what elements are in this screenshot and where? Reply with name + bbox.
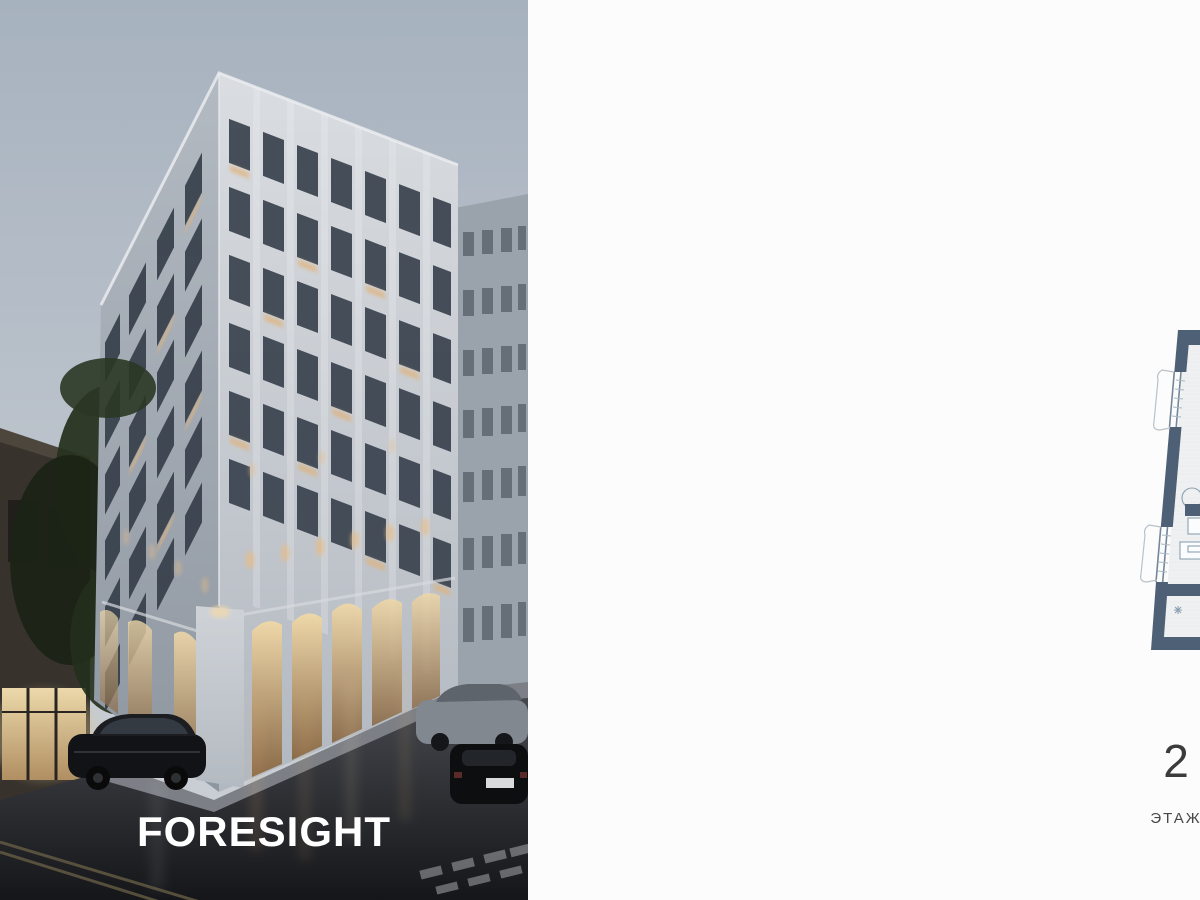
floor-plan: 16.89 20.92 6.16 1.93 2.43 3.60 7.77 6.5…	[1118, 262, 1200, 700]
stat-floor-value: 2	[1163, 738, 1189, 784]
apartment-stats: 2 ЭТАЖ 81,57 м2 ПЛОЩАДЬ 1 СПАЛЬНИ	[1056, 712, 1200, 852]
brand-wordmark: ДОМ СОБОЛЕВА	[1056, 182, 1200, 217]
stat-floor: 2 ЭТАЖ	[1056, 712, 1200, 852]
building-photo	[0, 0, 528, 900]
photo-brand-label: FORESIGHT	[0, 808, 528, 856]
brand-monogram-text: ДЗ	[528, 0, 529, 1]
building-right-face	[219, 73, 458, 792]
car-right-dark	[450, 744, 528, 804]
property-flyer: FORESIGHT ДЗ ДОМ СОБОЛЕВА	[0, 0, 1200, 900]
neighbor-building-right	[455, 194, 528, 705]
stat-floor-label: ЭТАЖ	[1150, 810, 1200, 827]
foliage-top	[60, 358, 156, 418]
info-panel: ДЗ ДОМ СОБОЛЕВА	[528, 0, 1200, 900]
